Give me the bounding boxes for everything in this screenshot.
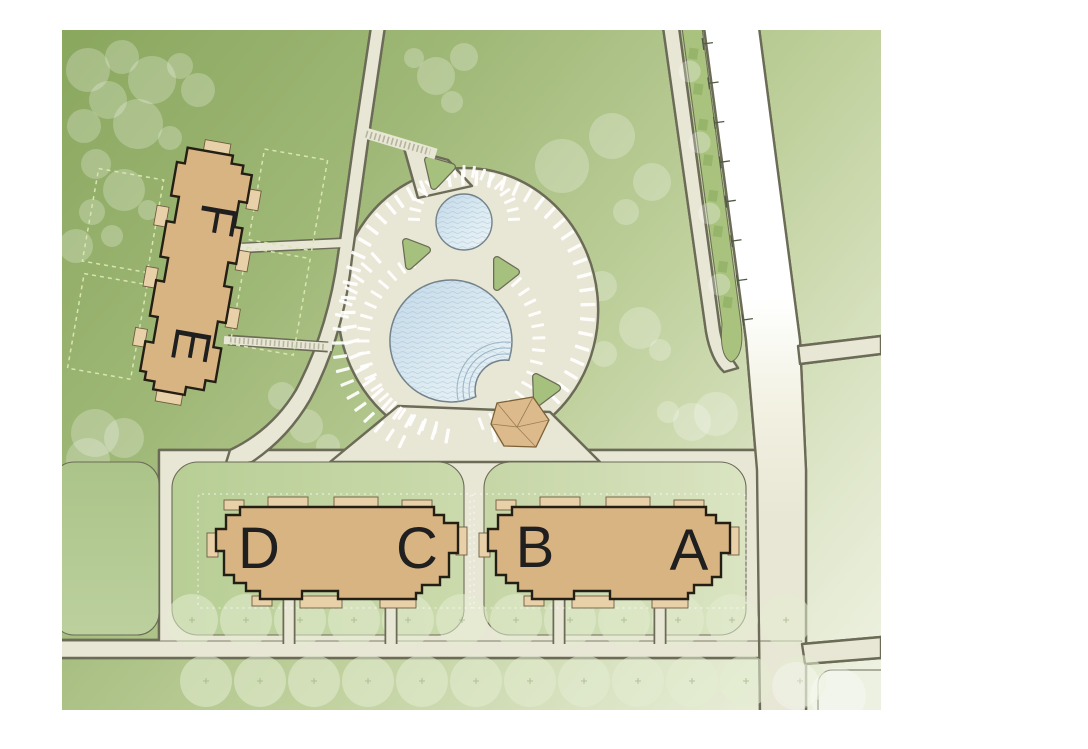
building-label-d[interactable]: D: [238, 516, 280, 581]
small-pool: [436, 194, 492, 250]
building-label-a[interactable]: A: [670, 518, 709, 583]
site-plan-map: F E D C B A: [0, 0, 1088, 749]
parcel-left: [52, 462, 159, 635]
building-label-c[interactable]: C: [396, 516, 438, 581]
building-label-b[interactable]: B: [516, 515, 555, 580]
site-plan-page: F E D C B A: [0, 0, 1088, 749]
